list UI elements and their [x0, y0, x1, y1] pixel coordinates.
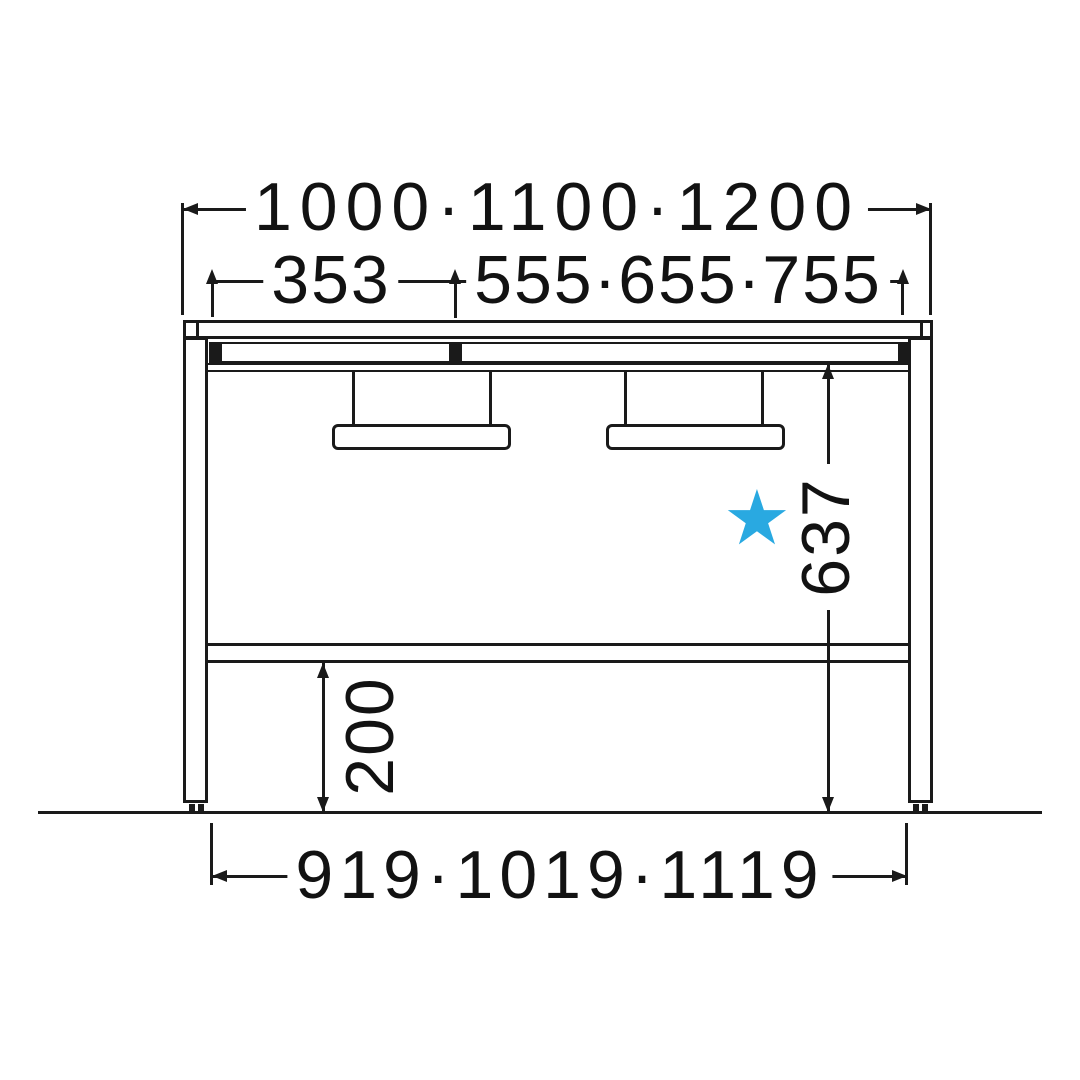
right-leg — [908, 337, 933, 803]
underside-height-label: 637 — [792, 477, 860, 596]
right-bracket-strut — [761, 371, 764, 426]
rail-middle-block — [449, 342, 462, 363]
arrow-up-icon — [822, 364, 834, 379]
arrow-left-icon — [212, 870, 227, 882]
ext-line-span-left — [211, 281, 214, 317]
desk-top-left-cap — [196, 322, 199, 337]
drawing-canvas: 1000·1100·1200 353 555·655·755 637 ★ — [0, 0, 1080, 1080]
arrow-up-icon — [449, 269, 461, 284]
arrow-down-icon — [822, 797, 834, 812]
star-icon: ★ — [723, 481, 791, 557]
right-span-label: 555·655·755 — [466, 246, 890, 314]
arrow-up-icon — [897, 269, 909, 284]
arrow-right-icon — [892, 870, 907, 882]
arrow-down-icon — [317, 797, 329, 812]
ext-line-overall-left — [181, 203, 184, 315]
arrow-up-icon — [317, 663, 329, 678]
arrow-right-icon — [916, 203, 931, 215]
left-span-label: 353 — [263, 246, 398, 314]
rail-end-block-right — [898, 342, 911, 363]
left-leg — [183, 337, 208, 803]
lower-panel-top-line — [208, 643, 909, 646]
ext-line-span-right — [901, 281, 904, 315]
right-bracket-strut — [624, 371, 627, 426]
lower-panel-bottom-line — [208, 660, 909, 663]
arrow-up-icon — [206, 269, 218, 284]
under-top-beam — [207, 363, 911, 372]
arrow-left-icon — [183, 203, 198, 215]
ground-line — [38, 811, 1042, 814]
left-bracket-strut — [489, 371, 492, 426]
dim-line-637-upper — [827, 364, 830, 464]
rail-end-block-left — [209, 342, 222, 363]
desk-top — [183, 320, 933, 339]
base-clearance-label: 200 — [336, 676, 404, 795]
ext-line-span-middle — [454, 281, 457, 318]
left-bracket-foot — [332, 424, 511, 450]
overall-width-label: 1000·1100·1200 — [246, 173, 868, 241]
back-rail — [209, 342, 911, 363]
dim-line-200 — [322, 663, 325, 813]
left-bracket-strut — [352, 371, 355, 426]
dim-line-637-lower — [827, 610, 830, 812]
inner-width-label: 919·1019·1119 — [287, 841, 832, 909]
ext-line-overall-right — [929, 203, 932, 315]
desk-top-right-cap — [920, 322, 923, 337]
right-bracket-foot — [606, 424, 785, 450]
